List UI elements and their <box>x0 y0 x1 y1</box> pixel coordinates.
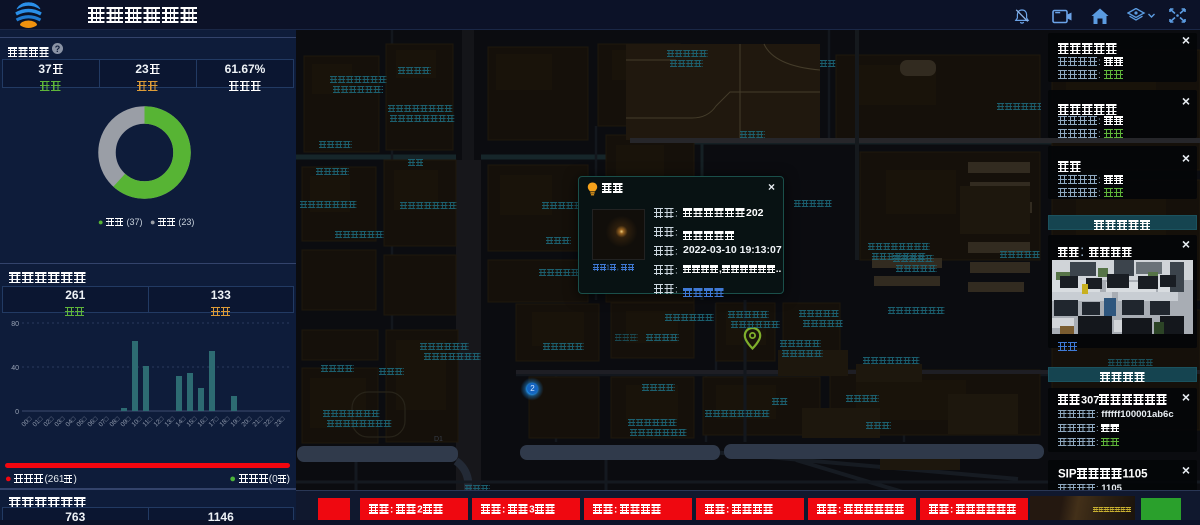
svg-text:80: 80 <box>11 321 19 328</box>
svg-text:16□: 16□ <box>196 416 209 429</box>
svg-text:21□: 21□ <box>251 416 264 429</box>
svg-text:40: 40 <box>11 365 19 372</box>
svg-text:18□: 18□ <box>218 416 231 429</box>
svg-text:02□: 02□ <box>42 416 55 429</box>
svg-text:04□: 04□ <box>64 416 77 429</box>
svg-text:07□: 07□ <box>97 416 110 429</box>
svg-text:23□: 23□ <box>273 416 286 429</box>
svg-text:09□: 09□ <box>119 416 132 429</box>
svg-text:15□: 15□ <box>185 416 198 429</box>
svg-text:03□: 03□ <box>53 416 66 429</box>
svg-text:20□: 20□ <box>240 416 253 429</box>
svg-text:17□: 17□ <box>207 416 220 429</box>
svg-text:22□: 22□ <box>262 416 275 429</box>
svg-text:10□: 10□ <box>130 416 143 429</box>
svg-text:05□: 05□ <box>75 416 88 429</box>
svg-text:08□: 08□ <box>108 416 121 429</box>
svg-text:01□: 01□ <box>31 416 44 429</box>
svg-text:14□: 14□ <box>174 416 187 429</box>
svg-text:12□: 12□ <box>152 416 165 429</box>
svg-text:11□: 11□ <box>141 416 154 429</box>
svg-text:19□: 19□ <box>229 416 242 429</box>
svg-text:06□: 06□ <box>86 416 99 429</box>
svg-text:13□: 13□ <box>163 416 176 429</box>
svg-text:00□: 00□ <box>20 416 33 429</box>
